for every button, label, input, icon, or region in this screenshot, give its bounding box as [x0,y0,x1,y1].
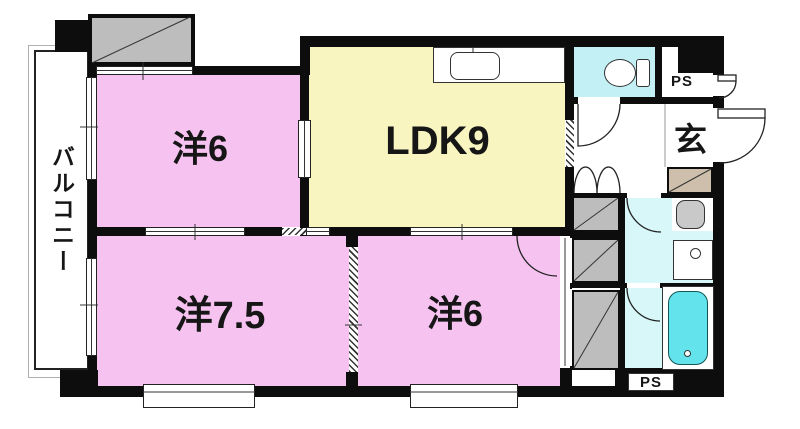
washroom-door-gap [627,193,661,198]
wall-right-3 [713,162,724,397]
slider-mid-1 [145,227,245,236]
entrance-door-leaf [718,109,765,118]
ldk-label: LDK9 [330,115,545,167]
wash-basin-icon [673,240,713,280]
wall-ps-top-block [678,47,713,73]
wall-entrance-top [662,97,724,104]
stair-box [88,14,195,66]
wall-closet-stub-bottom [560,366,572,388]
ps-door-leaf [718,75,736,81]
wall-mid-3 [330,227,410,236]
ps-top-label: PS [656,71,708,91]
floorplan: バルコニー [0,0,800,429]
wall-ldk-right-a [565,47,574,120]
wall-top-left [193,66,310,75]
wall-divider-stub-bottom [346,372,358,388]
slider-mid-2 [306,227,330,236]
slider-mid-3 [410,227,513,236]
wall-toilet-bottom-a [565,97,578,104]
wall-ldk-left-a [300,75,309,120]
bedroom-right-label: 洋6 [350,286,560,336]
window-top [96,66,193,75]
wall-right-1 [713,36,724,75]
window-balcony-1 [86,77,97,180]
entrance-door-arc [720,118,765,163]
closet-b [572,238,620,283]
mid-wall-hatch [282,228,306,235]
bedroom-left-label: 洋7.5 [100,286,340,336]
ps-bottom-label: PS [628,373,674,391]
wall-connector-top [300,36,310,75]
ldk-hall-slider [566,120,574,167]
entrance-label: 玄 [668,112,713,162]
room-hallway [574,104,662,193]
balcony-label: バルコニー [36,60,87,360]
window-bay-right [410,384,518,408]
wall-mid-4 [513,227,572,236]
closet-slider-strip [560,236,570,368]
bedroom-top-label: 洋6 [98,122,302,170]
wall-left-2 [88,180,97,258]
wall-top-left-block [55,20,88,52]
bathtub-drain [684,350,691,357]
kitchen-sink [450,52,500,80]
bathroom-door-gap [627,283,660,288]
wall-divider-stub-top [346,227,358,247]
wall-mid-2 [245,227,282,236]
wall-closet-divider-2 [568,283,625,288]
wall-mid-1 [88,227,145,236]
wall-balcony-corner [60,370,98,397]
window-bay-left [143,384,255,408]
wall-top-right [300,36,724,47]
closet-a [572,196,620,232]
closet-c [572,290,620,370]
shoe-cabinet [667,167,713,194]
wash-basin-drain [690,248,701,259]
toilet-bowl-icon [604,59,636,87]
washing-machine-icon [676,200,705,229]
toilet-tank-icon [636,59,650,87]
window-balcony-2 [86,258,97,356]
